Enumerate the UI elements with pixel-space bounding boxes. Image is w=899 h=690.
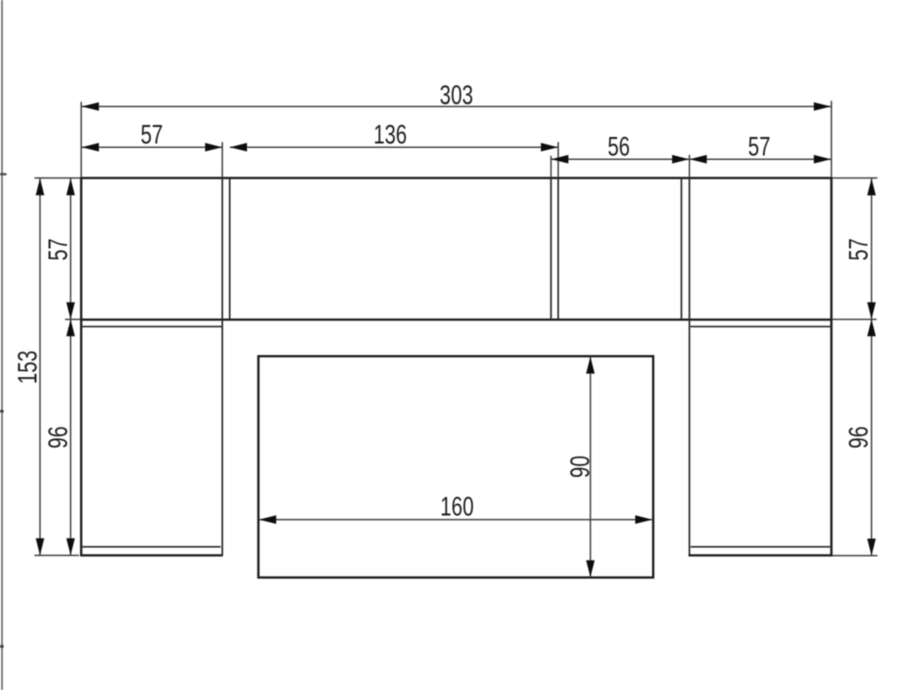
svg-text:56: 56 [608, 133, 630, 162]
svg-text:57: 57 [141, 121, 163, 150]
svg-text:57: 57 [845, 238, 874, 260]
svg-text:96: 96 [44, 426, 73, 448]
svg-text:96: 96 [845, 426, 874, 448]
svg-text:303: 303 [440, 82, 474, 111]
svg-text:160: 160 [440, 493, 474, 522]
svg-text:57: 57 [44, 238, 73, 260]
svg-text:90: 90 [566, 456, 595, 478]
svg-text:153: 153 [14, 350, 43, 384]
svg-text:136: 136 [373, 121, 407, 150]
svg-text:57: 57 [748, 133, 770, 162]
